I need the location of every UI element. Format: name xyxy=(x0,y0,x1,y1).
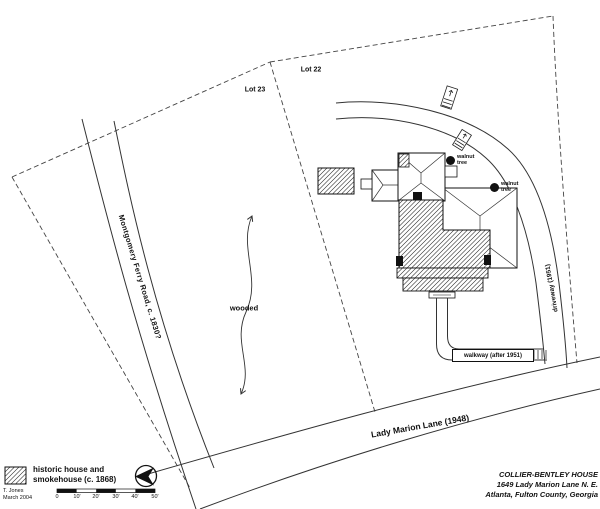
porch-steps xyxy=(403,278,483,291)
scale-tick: 0 xyxy=(55,494,58,500)
scale-tick: 20' xyxy=(92,494,99,500)
lot-divider-line xyxy=(270,62,375,412)
scale-tick: 10' xyxy=(73,494,80,500)
walkway-label: walkway (after 1951) xyxy=(452,349,534,362)
lot-22-label: Lot 22 xyxy=(301,67,322,74)
site-plan-drawing: Lot 23 Lot 22 Montgomery Ferry Road, c. … xyxy=(0,0,600,509)
chimney-hatched xyxy=(399,154,409,167)
scale-bar xyxy=(57,489,155,493)
wooded-label: wooded xyxy=(230,304,258,313)
lot-23-label: Lot 23 xyxy=(245,87,266,94)
legend-label: historic house and smokehouse (c. 1868) xyxy=(33,465,116,485)
bay-window-west xyxy=(361,179,372,189)
scale-tick: 50' xyxy=(151,494,158,500)
site-plan-linework xyxy=(0,0,600,509)
north-arrow-icon xyxy=(135,466,157,487)
title-block-address: 1649 Lady Marion Lane N. E. xyxy=(485,480,598,490)
title-block: COLLIER-BENTLEY HOUSE 1649 Lady Marion L… xyxy=(485,470,598,500)
title-block-city: Atlanta, Fulton County, Georgia xyxy=(485,490,598,500)
scale-tick: 30' xyxy=(112,494,119,500)
drawing-credit: T. Jones March 2004 xyxy=(3,488,32,502)
title-block-name: COLLIER-BENTLEY HOUSE xyxy=(485,470,598,480)
bay-window-east xyxy=(445,166,457,177)
legend-hatch-swatch xyxy=(5,467,26,484)
chimney-west xyxy=(396,256,403,266)
smokehouse xyxy=(318,168,354,194)
walnut-tree-label: walnut tree xyxy=(501,181,518,193)
porch xyxy=(397,268,488,278)
scale-tick: 40' xyxy=(131,494,138,500)
chimney-east xyxy=(484,255,491,265)
chimney-black xyxy=(413,192,422,200)
walnut-tree-label: walnut tree xyxy=(457,154,474,166)
house-north-wings xyxy=(361,153,457,201)
